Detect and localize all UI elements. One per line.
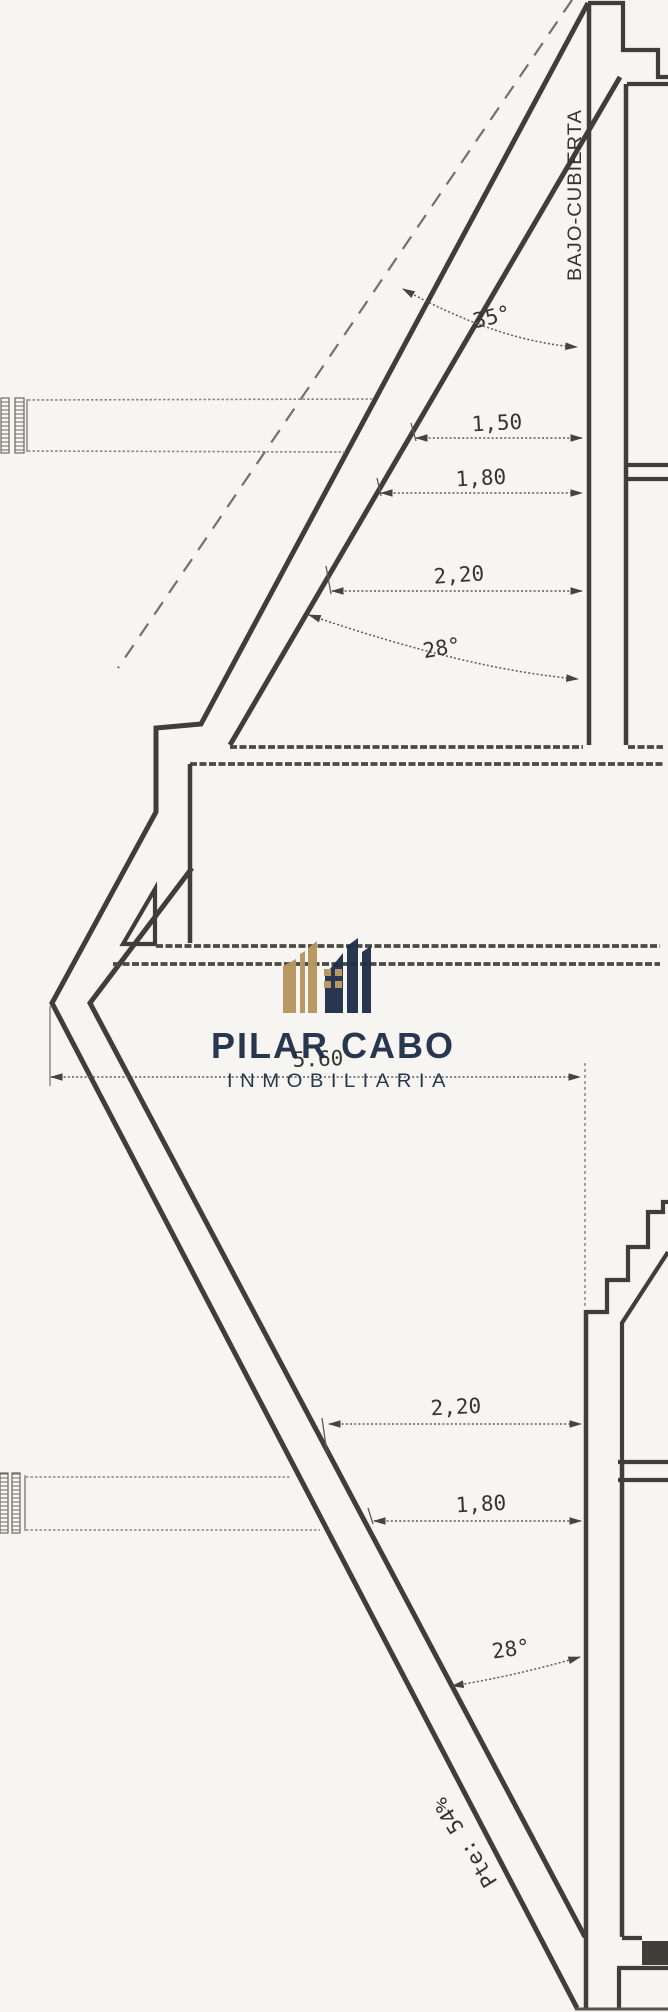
gold-building-icon <box>283 959 296 1013</box>
dim-220-lower-label: 2,20 <box>430 1394 482 1421</box>
dim-150-label: 1,50 <box>471 410 523 437</box>
beam-section-block <box>642 1941 668 1965</box>
room-label: BAJO-CUBIERTA <box>565 109 586 281</box>
dim-220-label: 2,20 <box>433 561 485 588</box>
dim-180-lower-label: 1,80 <box>455 1491 507 1518</box>
watermark-subtitle: INMOBILIARIA <box>227 1071 453 1092</box>
dim-180-label: 1,80 <box>455 465 507 492</box>
section-drawing-scan: 35° 1,50 1,80 2,20 28° BAJO-CUBIERTA 5.6… <box>0 0 668 2012</box>
watermark-title: PILAR CABO <box>211 1025 455 1066</box>
